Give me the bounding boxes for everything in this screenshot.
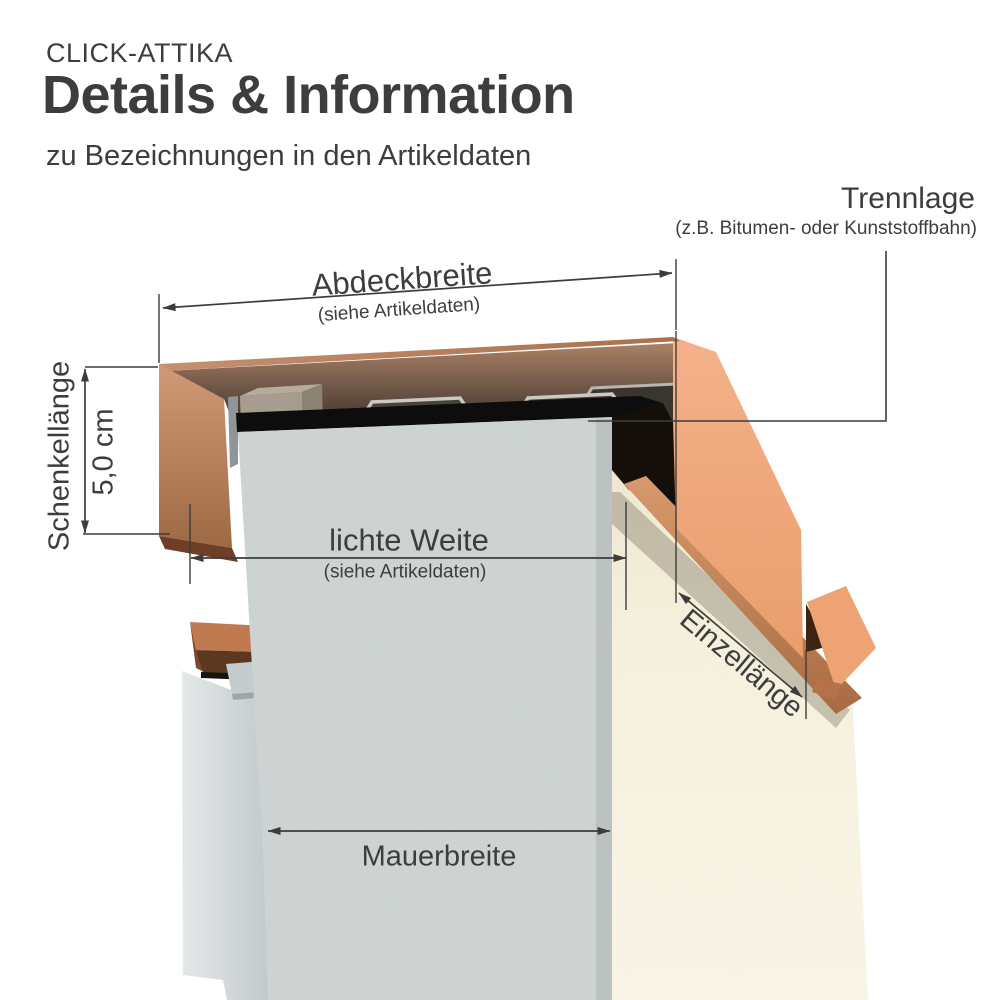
wall-front-face — [238, 417, 612, 1000]
trennlage-label: Trennlage — [841, 184, 975, 214]
diagram-page: CLICK-ATTIKA Details & Information zu Be… — [0, 0, 1000, 1000]
schenkellaenge-value: 5,0 cm — [90, 408, 119, 495]
page-subtitle: zu Bezeichnungen in den Artikeldaten — [46, 142, 531, 171]
coping-end-connector — [806, 586, 876, 700]
lichte-weite-note: (siehe Artikeldaten) — [324, 563, 487, 582]
clip-side-sliver — [228, 396, 238, 468]
page-title: Details & Information — [42, 68, 575, 122]
schenkellaenge-label: Schenkellänge — [46, 361, 75, 551]
mauerbreite-label: Mauerbreite — [362, 843, 517, 872]
trennlage-note: (z.B. Bitumen- oder Kunststoffbahn) — [675, 219, 977, 238]
brand-label: CLICK-ATTIKA — [46, 40, 233, 67]
lichte-weite-label: lichte Weite — [329, 525, 489, 556]
